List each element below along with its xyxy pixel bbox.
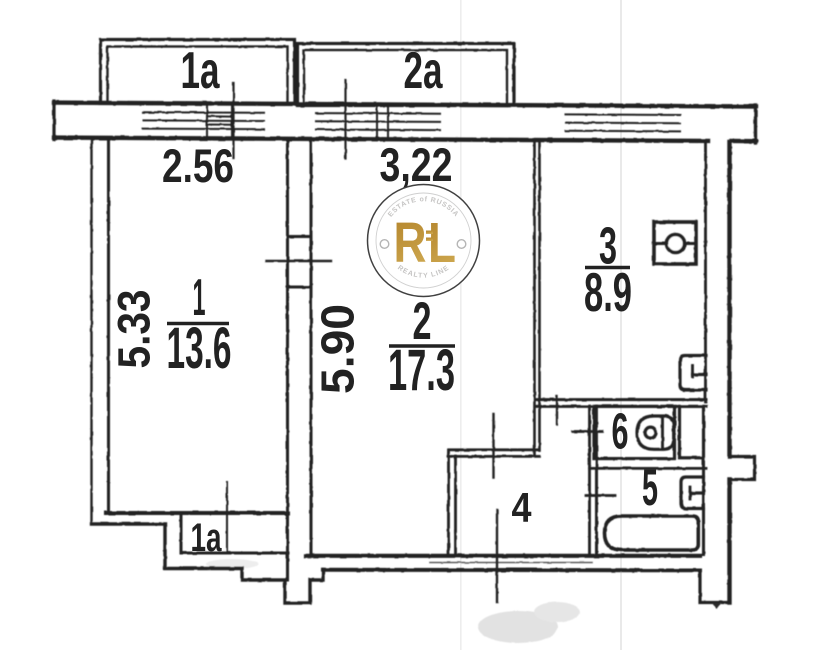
- svg-text:5: 5: [642, 459, 658, 517]
- svg-text:1a: 1a: [181, 42, 221, 100]
- svg-text:3,22: 3,22: [380, 138, 453, 191]
- svg-text:L: L: [428, 211, 456, 275]
- svg-text:4: 4: [512, 484, 533, 531]
- svg-text:13.6: 13.6: [167, 316, 232, 381]
- svg-text:6: 6: [612, 403, 629, 460]
- svg-text:5.33: 5.33: [109, 290, 160, 369]
- svg-text:2.56: 2.56: [162, 139, 234, 192]
- svg-text:5.90: 5.90: [312, 304, 364, 394]
- svg-text:R: R: [394, 211, 427, 275]
- svg-text:17.3: 17.3: [388, 338, 455, 403]
- svg-text:1a: 1a: [191, 516, 223, 560]
- svg-text:2a: 2a: [404, 42, 444, 100]
- svg-text:8.9: 8.9: [584, 261, 632, 323]
